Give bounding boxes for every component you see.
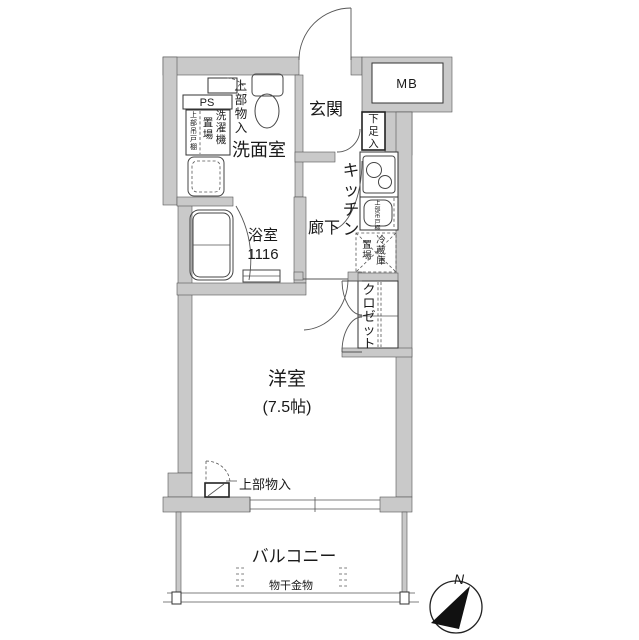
label-washer-place-left: 置場 <box>203 117 214 141</box>
wall-corridor-left <box>294 197 306 283</box>
label-kitchen-upper-cabinet: 上部吊戸棚 <box>374 199 380 232</box>
wall-bottom-right-block <box>380 497 412 512</box>
label-bathroom: 浴室 <box>248 227 278 244</box>
balcony-wall-right <box>402 512 407 593</box>
label-fridge-left: 置場 <box>362 240 372 262</box>
wall-entrance-step <box>295 152 335 162</box>
label-closet: クロゼット <box>362 282 375 351</box>
bath-counter <box>243 270 280 282</box>
label-washer-upper-cabinet: 上部吊戸棚 <box>190 110 197 151</box>
label-washroom: 洗面室 <box>232 140 286 160</box>
label-kitchen: キッチン <box>343 162 360 239</box>
entrance-door <box>299 8 351 60</box>
upper-storage-room <box>205 461 237 497</box>
kitchen-stove <box>360 152 398 197</box>
compass: N <box>430 571 482 633</box>
label-corridor: 廊下 <box>308 219 340 237</box>
wall-corridor-bottom-left <box>294 272 303 280</box>
balcony-post-right <box>400 592 409 604</box>
wall-bathroom-bottom <box>177 283 306 295</box>
bathtub <box>190 210 233 280</box>
wall-left-step <box>168 473 192 497</box>
label-western-room-size: (7.5帖) <box>263 398 312 416</box>
label-fridge-right: 冷蔵庫 <box>376 234 386 267</box>
balcony-wall-left <box>176 512 181 593</box>
wall-washroom-bathroom <box>177 197 233 206</box>
label-laundry-hardware: 物干金物 <box>269 578 313 592</box>
window-south <box>250 497 380 512</box>
floor-plan-page: N 玄関 MB PS 下足入 上部物入 洗面室 洗濯機 置場 上部吊戸棚 浴室 … <box>0 0 639 640</box>
label-washer-place-right: 洗濯機 <box>216 110 227 146</box>
balcony-post-left <box>172 592 181 604</box>
label-western-room: 洋室 <box>268 368 306 390</box>
laundry-hardware-mark-left <box>236 568 244 586</box>
wall-left-upper <box>163 57 177 205</box>
label-entrance: 玄関 <box>309 100 343 119</box>
label-bathroom-size: 1116 <box>247 246 278 263</box>
wall-top-door-stub <box>351 57 362 75</box>
label-upper-storage-washroom: 上部物入 <box>235 79 248 135</box>
entrance-hall-door-arc <box>337 129 360 152</box>
wall-bottom-left-block <box>163 497 250 512</box>
room-door <box>303 279 348 330</box>
toilet <box>252 74 283 128</box>
label-meter-box: MB <box>396 76 418 91</box>
laundry-hardware-mark-right <box>339 568 347 586</box>
label-upper-storage-room: 上部物入 <box>239 477 291 492</box>
wall-washroom-entrance <box>295 75 303 197</box>
label-shoe-cabinet: 下足入 <box>368 113 379 150</box>
wall-top-left <box>163 57 299 75</box>
label-balcony: バルコニー <box>252 547 337 566</box>
wall-closet-top <box>358 273 398 281</box>
wall-closet-bottom <box>342 348 412 357</box>
floor-plan-drawing: N 玄関 MB PS 下足入 上部物入 洗面室 洗濯機 置場 上部吊戸棚 浴室 … <box>0 0 639 640</box>
label-pipe-space: PS <box>200 97 215 109</box>
compass-north-label: N <box>454 571 465 587</box>
